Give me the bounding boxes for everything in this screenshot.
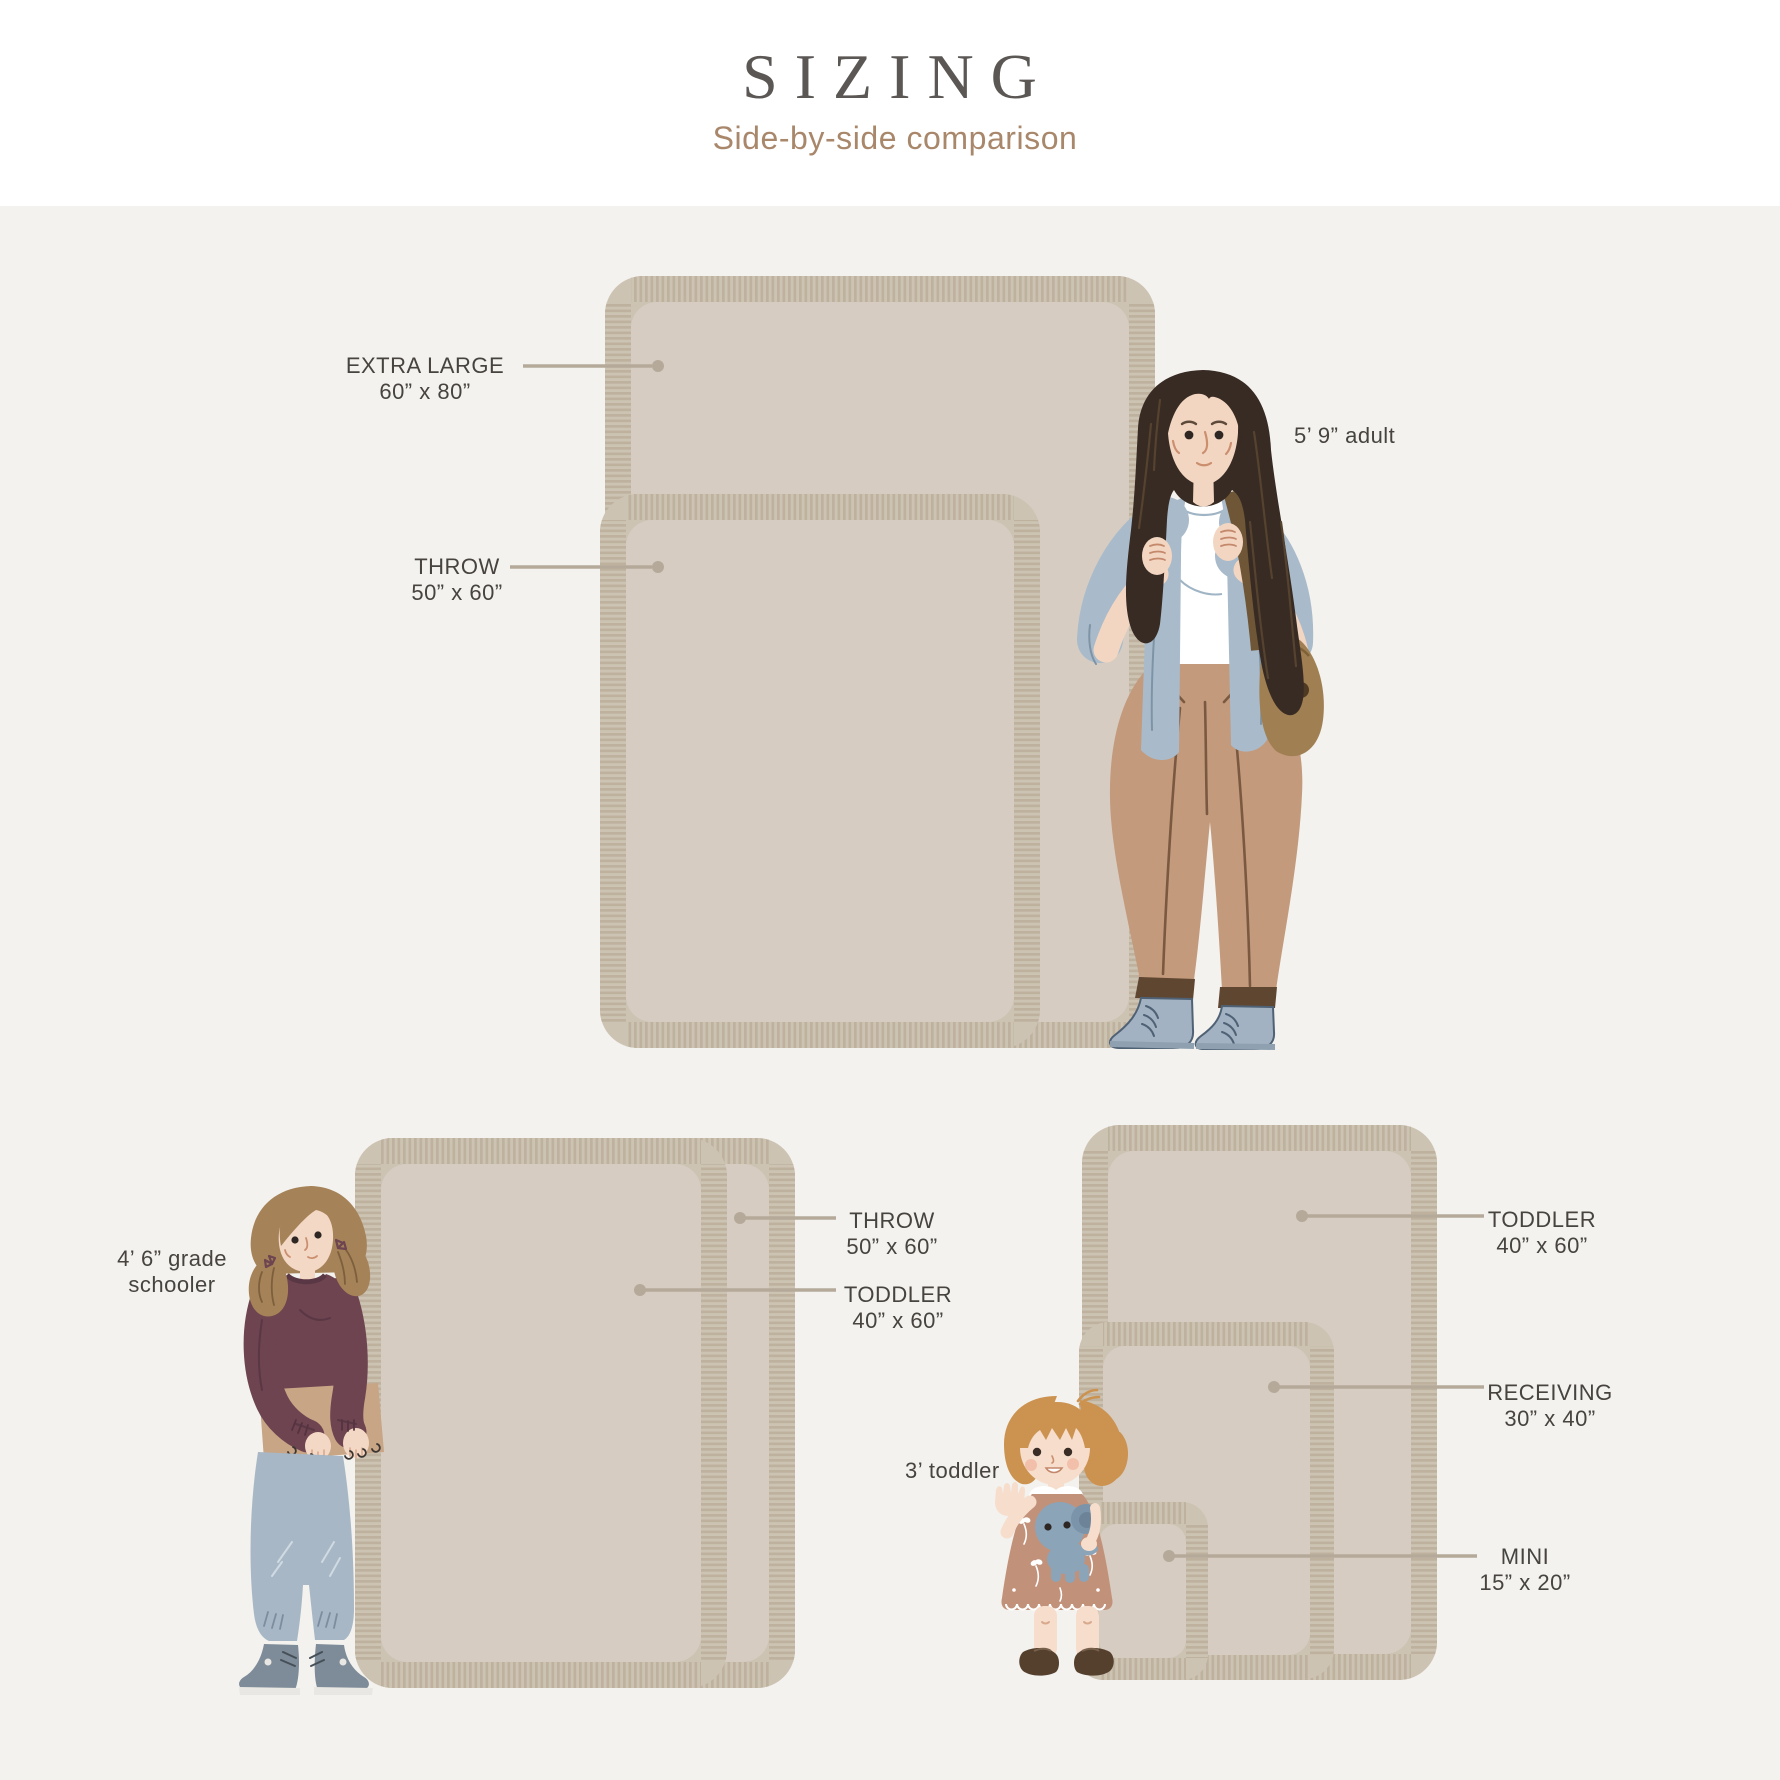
- svg-text:THROW: THROW: [414, 554, 500, 579]
- svg-text:5’ 9” adult: 5’ 9” adult: [1294, 423, 1395, 448]
- svg-text:schooler: schooler: [128, 1272, 215, 1297]
- svg-text:Side-by-side comparison: Side-by-side comparison: [713, 120, 1078, 156]
- svg-text:TODDLER: TODDLER: [844, 1282, 952, 1307]
- svg-text:40” x 60”: 40” x 60”: [852, 1308, 943, 1333]
- svg-text:40” x 60”: 40” x 60”: [1496, 1233, 1587, 1258]
- svg-text:50” x 60”: 50” x 60”: [846, 1234, 937, 1259]
- svg-text:4’ 6” grade: 4’ 6” grade: [117, 1246, 227, 1271]
- svg-text:MINI: MINI: [1501, 1544, 1549, 1569]
- svg-text:SIZING: SIZING: [742, 41, 1054, 112]
- svg-text:EXTRA LARGE: EXTRA LARGE: [346, 353, 504, 378]
- svg-text:60” x 80”: 60” x 80”: [379, 379, 470, 404]
- svg-text:TODDLER: TODDLER: [1488, 1207, 1596, 1232]
- svg-text:50” x 60”: 50” x 60”: [411, 580, 502, 605]
- svg-text:RECEIVING: RECEIVING: [1487, 1380, 1613, 1405]
- svg-text:3’ toddler: 3’ toddler: [905, 1458, 1000, 1483]
- svg-text:THROW: THROW: [849, 1208, 935, 1233]
- svg-text:15” x 20”: 15” x 20”: [1479, 1570, 1570, 1595]
- svg-text:30” x 40”: 30” x 40”: [1504, 1406, 1595, 1431]
